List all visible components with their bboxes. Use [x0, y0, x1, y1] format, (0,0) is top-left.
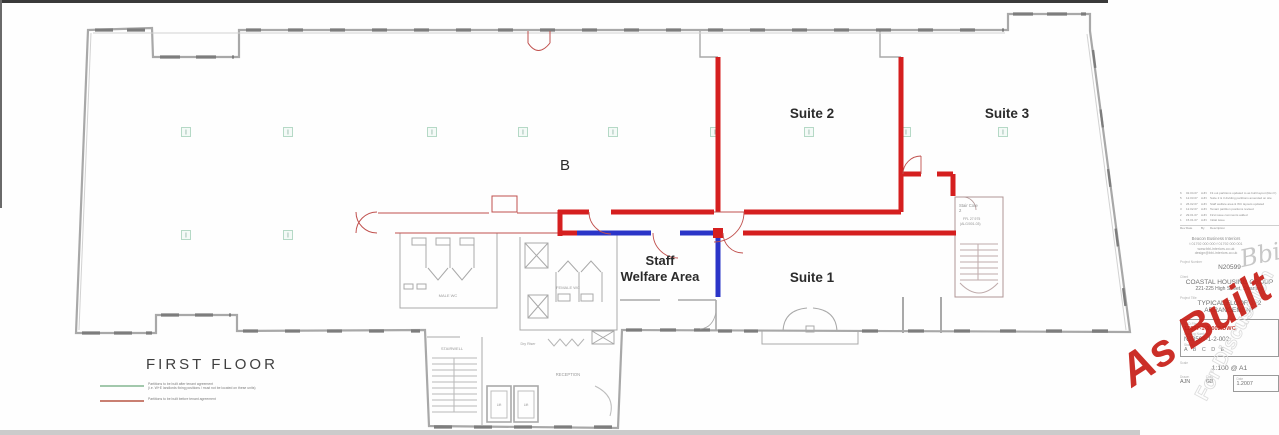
revision-table: 602.04.07AJNFit out partitions updated t… [1180, 192, 1279, 230]
client-address: 221-225 High Street, Swansea [1180, 286, 1279, 292]
revision-row: 602.04.07AJNFit out partitions updated t… [1180, 192, 1279, 195]
date-value: 1.2007 [1236, 381, 1276, 387]
welfare-label-2: Welfare Area [621, 269, 701, 284]
stairwell-label: STAIRWELL [441, 346, 464, 351]
column-marker-symbol: I [287, 233, 289, 240]
revision-header: RevDateByDescription [1180, 225, 1279, 230]
column-marker-symbol: I [431, 130, 433, 137]
rev-by: AJN [1201, 219, 1210, 222]
welfare-walls [620, 300, 716, 331]
door-arcs [589, 156, 921, 258]
rev-by: AJN [1201, 208, 1210, 211]
stair-core-label-1: Stair Core [959, 203, 979, 208]
stair-core-ffl: FFL 27.975 [963, 217, 980, 221]
rev-desc: Description [1210, 227, 1279, 230]
rev-date: 12.03.07 [1186, 197, 1201, 200]
project-title-line2: ARRANGEMENT [1180, 307, 1279, 314]
lift-b-label: Lift [524, 403, 529, 407]
window-bottom-edge [0, 430, 1140, 435]
rev-by: AJN [1201, 214, 1210, 217]
suite1-label: Suite 1 [790, 270, 835, 285]
rev-date: 26.02.07 [1186, 203, 1201, 206]
revision-row: 512.03.07AJNSuite 2 & 3 dividing partiti… [1180, 197, 1279, 200]
scale-value: 1:100 @ A1 [1180, 365, 1279, 372]
rev-date: 12.02.07 [1186, 208, 1201, 211]
rev-date: 02.04.07 [1186, 192, 1201, 195]
project-title-field: Project Title TYPICAL FLOOR 1+2 ARRANGEM… [1180, 296, 1279, 314]
revision-row: 229.01.07AJNFirst issue comments added [1180, 214, 1279, 217]
rev-by: AJN [1201, 197, 1210, 200]
floor-plan-sheet: IIIIIIIIIII B Suite 2 Suite 3 Suite 1 St… [0, 0, 1279, 435]
rev-desc: Tenant partition positions revised [1210, 208, 1279, 211]
welfare-label-1: Staff [646, 253, 676, 268]
revision-row: 426.02.07AJNStaff welfare area & WC layo… [1180, 203, 1279, 206]
column-marker-symbol: I [905, 130, 907, 137]
status-value: A B C D E [1184, 347, 1275, 353]
column-marker-symbol: I [185, 233, 187, 240]
rev-desc: Fit out partitions updated to as built l… [1210, 192, 1279, 195]
legend-item-after: Partitions to be built after tenant agre… [98, 382, 398, 392]
bbi-logo: Bbi [1239, 242, 1279, 269]
partition-node [713, 228, 723, 238]
column-marker-symbol: I [808, 130, 810, 137]
project-title-line1: TYPICAL FLOOR 1+2 [1180, 300, 1279, 307]
legend-swatch-green [100, 385, 144, 387]
reception-label: RECEPTION [556, 372, 580, 377]
date-box: Date 1.2007 [1233, 375, 1279, 392]
legend-after-line2: (i.e. W+E landlords fixing positions / m… [148, 386, 398, 390]
sign-off-row: Drawn AJN Chkd GB Date 1.2007 [1180, 375, 1279, 392]
drawing-number-box: CAD File 12007-1-2-002.DWG Drawing Numbe… [1180, 319, 1279, 357]
column-marker-symbol: I [522, 130, 524, 137]
rev-desc: Suite 2 & 3 dividing partitions amended … [1210, 197, 1279, 200]
scale-field: Scale 1:100 @ A1 [1180, 361, 1279, 372]
first-floor-title: FIRST FLOOR [146, 356, 398, 373]
checked-value: GB [1206, 379, 1232, 385]
dry-riser-label: Dry Riser [521, 342, 537, 346]
column-marker-symbol: I [287, 130, 289, 137]
drawn-value: AJN [1180, 379, 1206, 385]
legend-before-line1: Partitions to be built before tenant agr… [148, 397, 398, 401]
column-markers: IIIIIIIIIII [182, 128, 1008, 240]
rev-date: 15.01.07 [1186, 219, 1201, 222]
suite1-entrance-porch [762, 308, 858, 344]
window-left-edge [0, 0, 2, 208]
rev-desc: Initial issue [1210, 219, 1279, 222]
column-marker-symbol: I [185, 130, 187, 137]
area-b-label: B [560, 157, 570, 174]
rev-date: Date [1186, 227, 1201, 230]
legend: FIRST FLOOR Partitions to be built after… [98, 356, 398, 412]
legend-item-before: Partitions to be built before tenant agr… [98, 397, 398, 407]
stair-core-label-2: 2 [959, 208, 962, 213]
column-marker-symbol: I [612, 130, 614, 137]
rev-date: 29.01.07 [1186, 214, 1201, 217]
column-marker-symbol: I [1002, 130, 1004, 137]
rev-desc: First issue comments added [1210, 214, 1279, 217]
rev-by: By [1201, 227, 1210, 230]
lift-a-label: Lift [497, 403, 502, 407]
window-top-edge [0, 0, 1108, 3]
stair-core-2 [903, 197, 1003, 333]
stair-core-ref: (ALG/001-03) [960, 222, 981, 226]
revision-row: 312.02.07AJNTenant partition positions r… [1180, 208, 1279, 211]
client-field: Client COASTAL HOUSING GROUP 221-225 Hig… [1180, 275, 1279, 292]
client-name: COASTAL HOUSING GROUP [1180, 279, 1279, 286]
rev-by: AJN [1201, 203, 1210, 206]
red-partitions [558, 57, 956, 236]
drawing-number-value: N20599-1-2-002 [1184, 336, 1275, 343]
legend-swatch-red [100, 400, 144, 402]
male-wc-label: MALE WC [439, 293, 458, 298]
female-wc-label: FEMALE WC [556, 285, 580, 290]
rev-desc: Staff welfare area & WC layouts updated [1210, 203, 1279, 206]
suite2-label: Suite 2 [790, 106, 834, 121]
rev-by: AJN [1201, 192, 1210, 195]
revision-row: 115.01.07AJNInitial issue [1180, 219, 1279, 222]
plan-labels: B Suite 2 Suite 3 Suite 1 Staff Welfare … [439, 106, 1030, 407]
wc-block [400, 233, 617, 330]
suite3-label: Suite 3 [985, 106, 1030, 121]
title-block: 602.04.07AJNFit out partitions updated t… [1180, 192, 1279, 392]
